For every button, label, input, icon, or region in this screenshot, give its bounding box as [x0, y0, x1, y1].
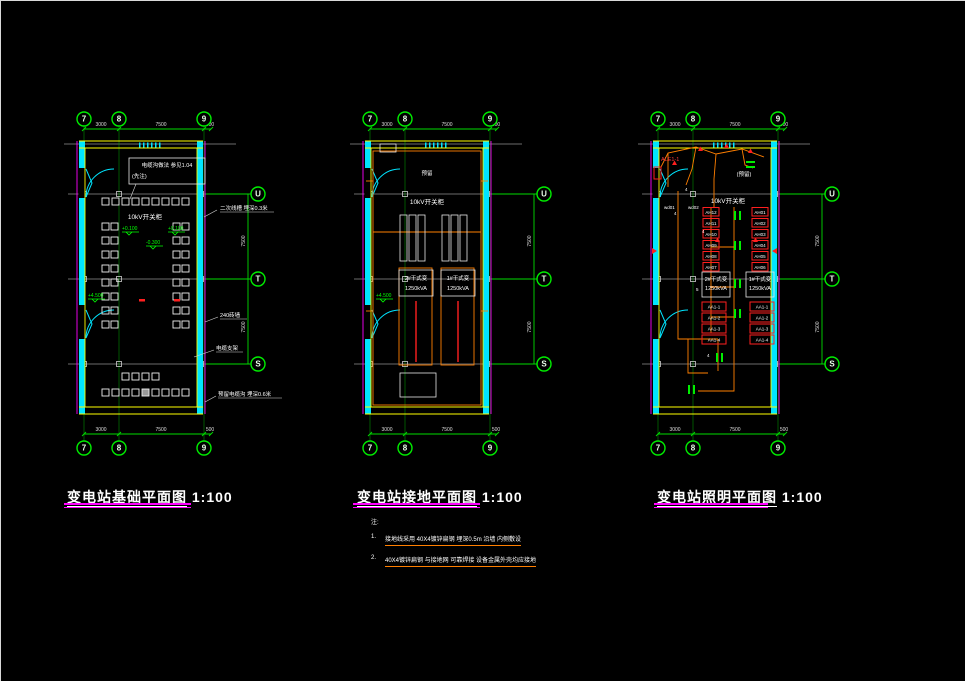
dim-label: 500: [492, 427, 501, 433]
plan2-grid-bubbles: 7 8 9 7 8 9 U T S: [363, 112, 551, 455]
cad-canvas: 3000 7500 500 3000 7500 500 7500 7500 7 …: [1, 1, 965, 681]
dim-label-vertical: 7500: [241, 321, 247, 332]
plan2-grounding-layout: 2#干式变 1250kVA 1#干式变 1250kVA 10kV开关柜 预留 +…: [366, 144, 488, 405]
dim-label-vertical: 7500: [815, 235, 821, 246]
grid-bubble-label: S: [541, 360, 547, 369]
title-underline: [654, 507, 768, 508]
leader-note: 电缆支架: [216, 344, 239, 352]
elevation-mark: +0.100: [122, 226, 138, 232]
dim-label: 500: [780, 427, 789, 433]
dim-label: 500: [206, 427, 215, 433]
note-item: 1. 接地线采用 40X4镀锌扁钢 埋深0.5m 沿墙 内侧敷设: [371, 534, 536, 546]
grid-bubble-label: 8: [691, 115, 696, 124]
grid-bubble-label: U: [255, 190, 261, 199]
grid-bubble-label: S: [829, 360, 835, 369]
grid-bubble-label: 8: [403, 115, 408, 124]
plan2-title-scale: 1:100: [482, 489, 523, 505]
switchgear-label: 10kV开关柜: [128, 212, 163, 221]
grid-bubble-label: S: [255, 360, 261, 369]
transformer-label: 2#干式变: [705, 275, 728, 283]
title-underline: [64, 503, 191, 505]
transformer-rating: 1250kVA: [705, 286, 727, 292]
plan2-grid-axes: 3000 7500 500 3000 7500 500 7500 7500: [350, 122, 537, 441]
grid-bubble-label: T: [830, 275, 835, 284]
panel-tag: AH05: [754, 254, 766, 259]
grid-bubble-label: 8: [117, 444, 122, 453]
dim-label: 3000: [381, 427, 392, 433]
grid-bubble-label: 8: [403, 444, 408, 453]
wire-count: 4: [707, 353, 710, 358]
panel-tag: AH12: [705, 210, 717, 215]
grid-bubble-label: 7: [656, 444, 661, 453]
transformer-rating: 1250kVA: [405, 286, 427, 292]
plan1-building-walls: [77, 141, 205, 414]
switchgear-label: 10kV开关柜: [410, 197, 445, 206]
grid-bubble-label: U: [829, 190, 835, 199]
box-tag: AA1-3: [756, 327, 769, 332]
box-tag: AA1-3: [708, 327, 721, 332]
panel-tag: AH03: [754, 232, 766, 237]
grid-bubble-label: U: [541, 190, 547, 199]
plan3-title-scale: 1:100: [782, 489, 823, 505]
grid-bubble-label: 8: [117, 115, 122, 124]
elevation-mark: +4.500: [88, 293, 104, 299]
box-tag: AA1-2: [708, 316, 721, 321]
title-underline: [654, 503, 768, 505]
general-notes: 注: 1. 接地线采用 40X4镀锌扁钢 埋深0.5m 沿墙 内侧敷设 2. 4…: [371, 517, 536, 576]
cad-drawing-view: 3000 7500 500 3000 7500 500 7500 7500 7 …: [0, 0, 965, 681]
circuit-label: wd01: [664, 205, 675, 210]
elevation-mark: -0.300: [146, 240, 160, 246]
wire-count: 4: [674, 211, 677, 216]
dim-label: 3000: [669, 122, 680, 128]
distribution-box-tags: AA1-1 AA1-2 AA1-3 AA1-4 AA1-1 AA1-2 AA1-…: [702, 302, 774, 344]
panel-tag: AH11: [706, 221, 717, 226]
title-underline: [353, 507, 480, 508]
panel-tag: AH10: [705, 232, 717, 237]
note-text: 40X4镀锌扁钢 与接地网 可靠焊接 设备金属外壳均应接地: [385, 555, 536, 567]
grid-bubble-label: 9: [202, 444, 207, 453]
panel-tag: AH04: [754, 243, 766, 248]
dim-label: 7500: [441, 122, 452, 128]
grid-bubble-label: 7: [656, 115, 661, 124]
grid-bubble-label: 9: [776, 444, 781, 453]
grid-bubble-label: 7: [82, 115, 87, 124]
wire-count: 4: [685, 187, 688, 192]
switchgear-label: 10kV开关柜: [711, 196, 746, 205]
cable-trench-note2: (先注): [132, 172, 147, 180]
plan3-grid-axes: 3000 7500 500 3000 7500 500 7500 7500: [638, 122, 825, 441]
dim-label: 7500: [729, 427, 740, 433]
panel-tag: AH07: [705, 265, 717, 270]
dim-label: 3000: [95, 427, 106, 433]
grid-bubble-label: 7: [368, 444, 373, 453]
leader-note: 预留电缆沟 埋深0.6米: [218, 390, 272, 398]
grid-bubble-label: 9: [776, 115, 781, 124]
grid-bubble-label: 7: [82, 444, 87, 453]
lighting-panel-label: ALE1-1: [661, 157, 679, 163]
note-item: 2. 40X4镀锌扁钢 与接地网 可靠焊接 设备金属外壳均应接地: [371, 555, 536, 567]
dim-label: 3000: [381, 122, 392, 128]
circuit-label: wd02: [688, 205, 699, 210]
title-underline: [353, 503, 480, 505]
dim-label-vertical: 7500: [527, 235, 533, 246]
transformer-label: 1#干式变: [447, 274, 470, 282]
dim-label-vertical: 7500: [815, 321, 821, 332]
note-number: 2.: [371, 555, 385, 561]
panel-tag: AH01: [754, 210, 766, 215]
dim-label-vertical: 7500: [241, 235, 247, 246]
cable-trench-note: 电缆沟做法 参见1.04: [142, 161, 193, 169]
box-tag: AA1-4: [708, 338, 721, 343]
plan1-title-scale: 1:100: [192, 489, 233, 505]
box-tag: AA1-4: [756, 338, 769, 343]
note-text: 接地线采用 40X4镀锌扁钢 埋深0.5m 沿墙 内侧敷设: [385, 534, 521, 546]
wire-count: 5: [696, 287, 699, 292]
notes-header: 注:: [371, 517, 536, 526]
grid-bubble-label: 7: [368, 115, 373, 124]
dim-label: 7500: [729, 122, 740, 128]
grid-bubble-label: 9: [488, 444, 493, 453]
box-tag: AA1-1: [708, 305, 721, 310]
dim-label: 7500: [155, 427, 166, 433]
transformer-label: 2#干式变: [405, 274, 428, 282]
plan3-lighting-layout: ALE1-1 AH12 AH11 AH10 AH09 AH08 AH07 AH0…: [652, 144, 777, 395]
box-tag: AA1-2: [756, 316, 769, 321]
grid-bubble-label: 9: [488, 115, 493, 124]
reserved-label: (预留): [737, 170, 752, 178]
dim-label: 7500: [155, 122, 166, 128]
title-underline: [64, 507, 191, 508]
panel-tag: AH02: [754, 221, 766, 226]
elevation-mark: +4.500: [376, 293, 392, 299]
grid-bubble-label: 9: [202, 115, 207, 124]
box-tag: AA1-1: [756, 305, 769, 310]
panel-tag: AH09: [705, 243, 717, 248]
transformer-label: 1#干式变: [749, 275, 772, 283]
dim-label: 7500: [441, 427, 452, 433]
grid-bubble-label: T: [542, 275, 547, 284]
grid-bubble-label: 8: [691, 444, 696, 453]
leader-note: 240砖墙: [220, 311, 241, 319]
leader-note: 二次线槽 埋深0.3米: [220, 204, 268, 212]
dim-label: 3000: [669, 427, 680, 433]
transformer-rating: 1250kVA: [447, 286, 469, 292]
grid-bubble-label: T: [256, 275, 261, 284]
panel-tag: AH08: [705, 254, 717, 259]
dim-label-vertical: 7500: [527, 321, 533, 332]
note-number: 1.: [371, 534, 385, 540]
elevation-mark: +0.100: [168, 226, 184, 232]
dim-label: 3000: [95, 122, 106, 128]
panel-tag: AH06: [754, 265, 766, 270]
transformer-rating: 1250kVA: [749, 286, 771, 292]
reserved-label: 预留: [421, 169, 433, 177]
